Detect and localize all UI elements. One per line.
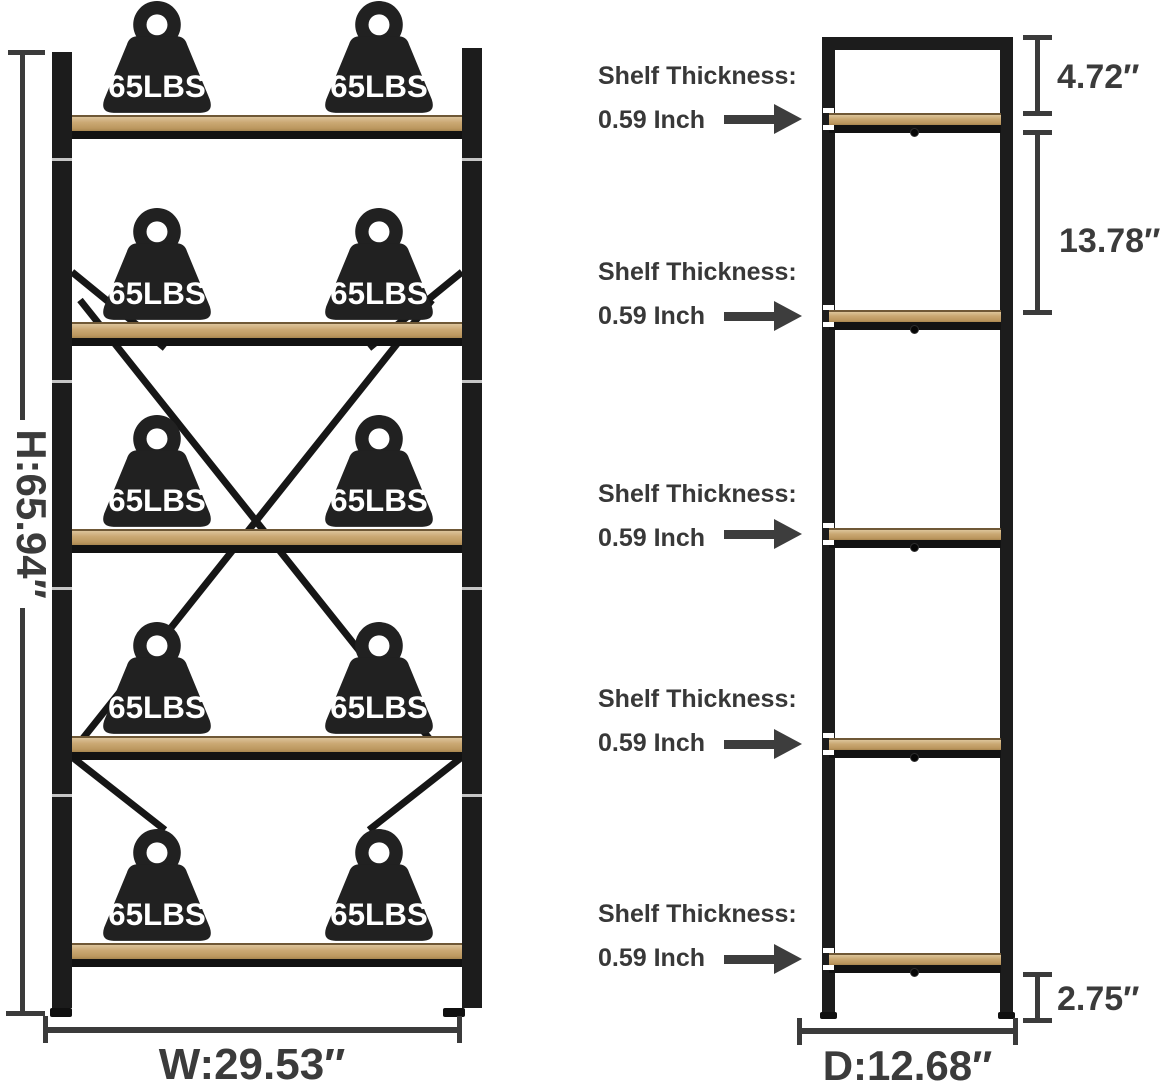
right-arrow-icon (724, 103, 802, 135)
height-dim-line-upper (20, 55, 25, 420)
weight-icon: 65LBS (320, 206, 438, 328)
width-dim-line (44, 1027, 462, 1033)
post-joint-seam (52, 587, 72, 590)
shelf-thickness-title: Shelf Thickness: (598, 62, 797, 91)
weight-label: 65LBS (330, 483, 428, 518)
post-notch (823, 108, 834, 113)
height-dim-bottom-tick (6, 1011, 45, 1016)
depth-dim-right-tick (1013, 1018, 1018, 1045)
shelf-thickness-title: Shelf Thickness: (598, 258, 797, 287)
front-left-foot (50, 1008, 72, 1017)
mid-gap-label: 13.78″ (1059, 222, 1160, 261)
weight-icon: 65LBS (98, 620, 216, 742)
front-left-post (52, 52, 72, 1008)
top-gap-label: 4.72″ (1057, 58, 1139, 97)
side-shelf-board (829, 113, 1001, 125)
right-arrow-icon (724, 728, 802, 760)
post-joint-seam (462, 587, 482, 590)
right-arrow-icon (724, 943, 802, 975)
side-shelf-board (829, 953, 1001, 965)
side-top-bar (822, 37, 1013, 50)
weight-icon: 65LBS (98, 0, 216, 121)
shelf-thickness-value: 0.59 Inch (598, 302, 705, 331)
screw-dot (910, 128, 919, 137)
shelf-thickness-title: Shelf Thickness: (598, 900, 797, 929)
post-joint-seam (462, 380, 482, 383)
shelf-support-bar (72, 959, 462, 967)
height-dim-top-tick (8, 50, 45, 55)
post-notch (823, 965, 834, 970)
mid-gap-lower-tick (1023, 310, 1052, 315)
weight-icon: 65LBS (320, 827, 438, 949)
product-dimension-diagram: H:65.94″ 65LBS 65 (0, 0, 1162, 1085)
width-dimension-label: W:29.53″ (42, 1040, 462, 1085)
screw-dot (910, 968, 919, 977)
weight-label: 65LBS (330, 69, 428, 104)
right-arrow-icon (724, 518, 802, 550)
shelf-thickness-value: 0.59 Inch (598, 106, 705, 135)
weight-icon: 65LBS (98, 413, 216, 535)
shelf-thickness-value: 0.59 Inch (598, 729, 705, 758)
weight-label: 65LBS (108, 69, 206, 104)
weight-icon: 65LBS (320, 620, 438, 742)
shelf-support-bar (72, 752, 462, 760)
side-left-foot (820, 1012, 837, 1019)
screw-dot (910, 543, 919, 552)
height-dim-line-lower (20, 608, 25, 1013)
front-right-post (462, 48, 482, 1008)
post-joint-seam (462, 794, 482, 797)
weight-label: 65LBS (108, 690, 206, 725)
post-notch (823, 305, 834, 310)
side-shelf-board (829, 738, 1001, 750)
side-shelf-board (829, 528, 1001, 540)
mid-gap-line (1035, 130, 1040, 315)
shelf-thickness-title: Shelf Thickness: (598, 685, 797, 714)
post-joint-seam (52, 380, 72, 383)
screw-dot (910, 753, 919, 762)
post-notch (823, 540, 834, 545)
bottom-gap-line (1035, 972, 1040, 1023)
shelf-support-bar (72, 545, 462, 553)
side-right-post (1000, 37, 1013, 1017)
top-gap-line (1035, 35, 1040, 116)
weight-label: 65LBS (108, 483, 206, 518)
weight-icon: 65LBS (320, 0, 438, 121)
depth-dimension-label: D:12.68″ (798, 1042, 1017, 1085)
post-joint-seam (52, 158, 72, 161)
side-shelf-board (829, 310, 1001, 322)
depth-dim-line (798, 1028, 1017, 1034)
width-dim-right-tick (457, 1016, 462, 1043)
post-notch (823, 523, 834, 528)
shelf-support-bar (72, 338, 462, 346)
shelf-thickness-value: 0.59 Inch (598, 524, 705, 553)
shelf-support-bar (72, 131, 462, 139)
bottom-gap-lower-tick (1023, 1018, 1052, 1023)
right-arrow-icon (724, 300, 802, 332)
post-joint-seam (52, 794, 72, 797)
screw-dot (910, 325, 919, 334)
weight-label: 65LBS (330, 690, 428, 725)
weight-label: 65LBS (330, 897, 428, 932)
weight-label: 65LBS (108, 276, 206, 311)
weight-icon: 65LBS (98, 206, 216, 328)
weight-icon: 65LBS (98, 827, 216, 949)
bottom-gap-label: 2.75″ (1057, 980, 1139, 1019)
weight-label: 65LBS (108, 897, 206, 932)
post-joint-seam (462, 158, 482, 161)
post-notch (823, 733, 834, 738)
top-gap-lower-tick (1023, 111, 1052, 116)
weight-icon: 65LBS (320, 413, 438, 535)
post-notch (823, 948, 834, 953)
post-notch (823, 750, 834, 755)
shelf-thickness-value: 0.59 Inch (598, 944, 705, 973)
shelf-thickness-title: Shelf Thickness: (598, 480, 797, 509)
weight-label: 65LBS (330, 276, 428, 311)
post-notch (823, 125, 834, 130)
post-notch (823, 322, 834, 327)
